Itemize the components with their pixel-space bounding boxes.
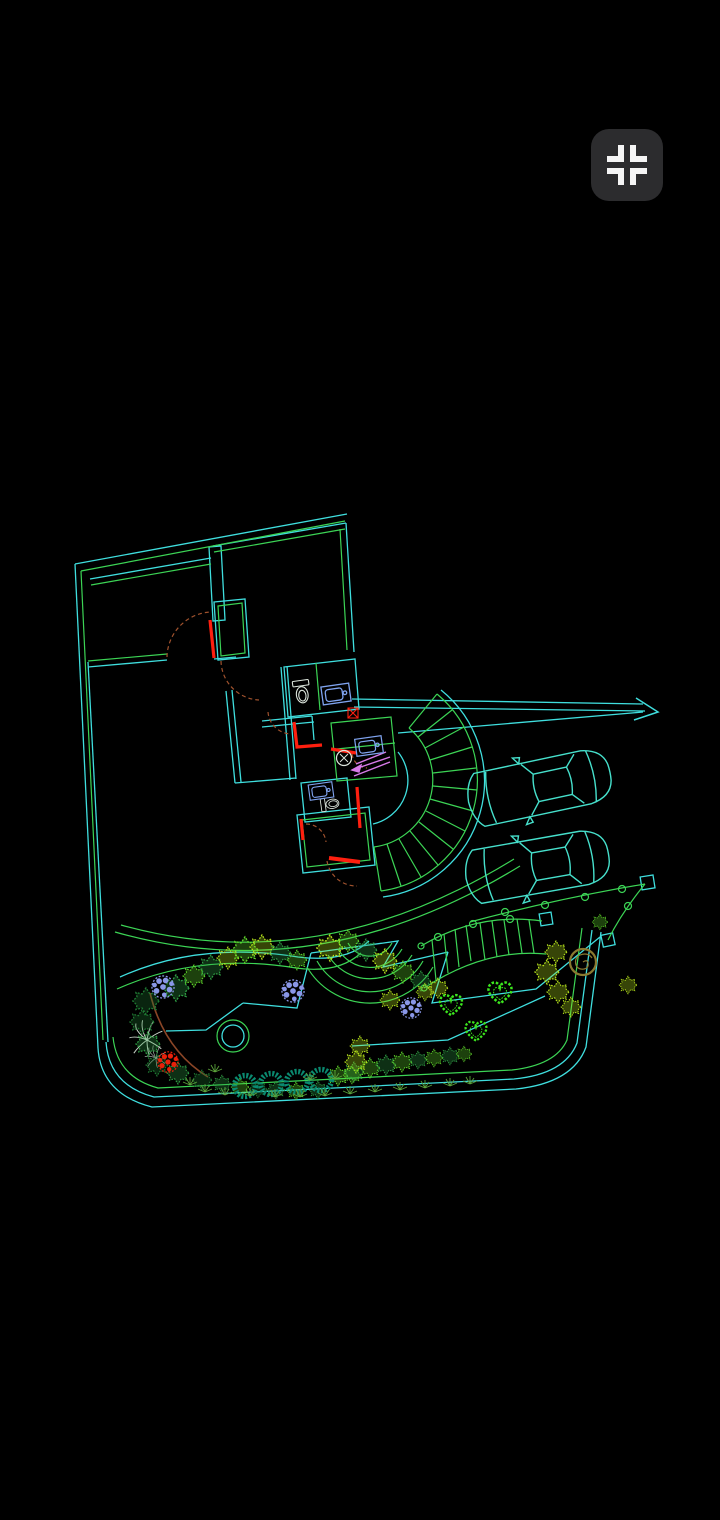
toilet-fixtures bbox=[129, 679, 351, 1067]
app-screen bbox=[0, 0, 720, 1520]
green-linework bbox=[81, 521, 645, 1088]
site-and-walls-cyan bbox=[75, 514, 658, 1107]
olive-tree bbox=[570, 949, 596, 975]
cad-drawing-canvas[interactable] bbox=[0, 0, 720, 1520]
heart-shrubs bbox=[440, 982, 512, 1040]
hedge-bushes bbox=[130, 914, 637, 1100]
fit-to-screen-icon bbox=[591, 129, 663, 201]
door-leaves-red bbox=[210, 620, 360, 862]
car-bottom bbox=[460, 820, 614, 912]
fit-to-screen-button[interactable] bbox=[591, 129, 663, 201]
